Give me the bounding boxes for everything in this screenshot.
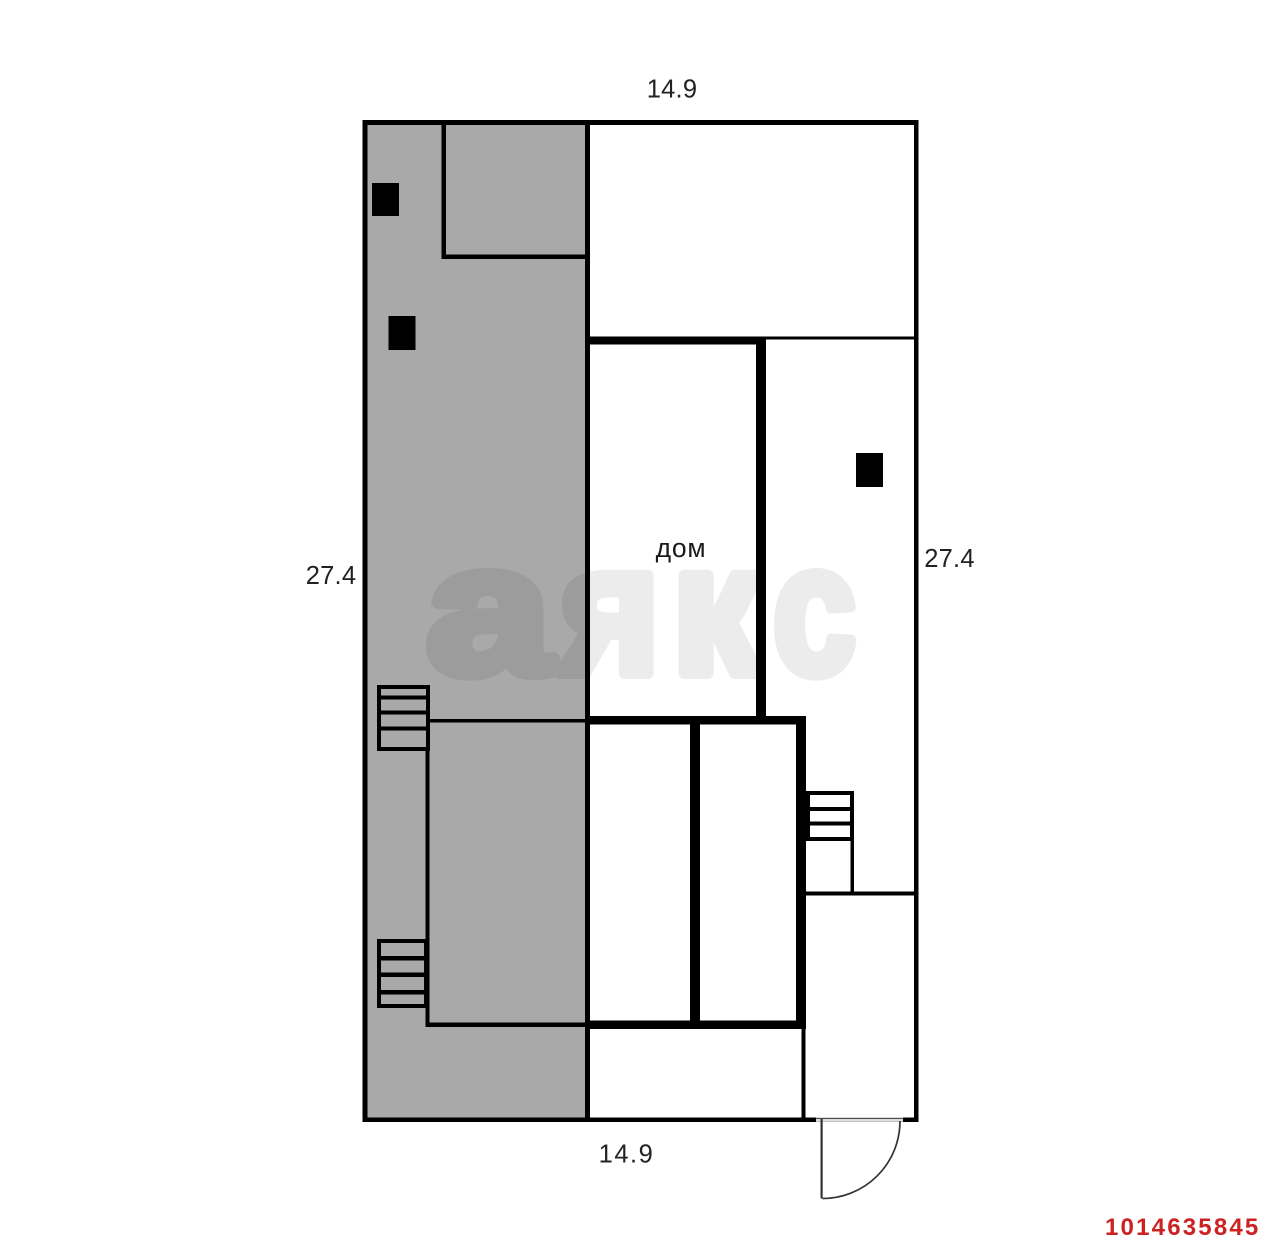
svg-text:27.4: 27.4: [924, 545, 974, 573]
svg-text:1014635845: 1014635845: [1105, 1214, 1260, 1241]
svg-text:дом: дом: [656, 533, 707, 563]
svg-text:с: с: [773, 507, 856, 713]
svg-text:27.4: 27.4: [306, 562, 356, 590]
svg-text:14.9: 14.9: [599, 1141, 655, 1169]
svg-text:а: а: [427, 507, 554, 712]
svg-text:14.9: 14.9: [647, 76, 697, 104]
svg-text:я: я: [559, 506, 660, 712]
